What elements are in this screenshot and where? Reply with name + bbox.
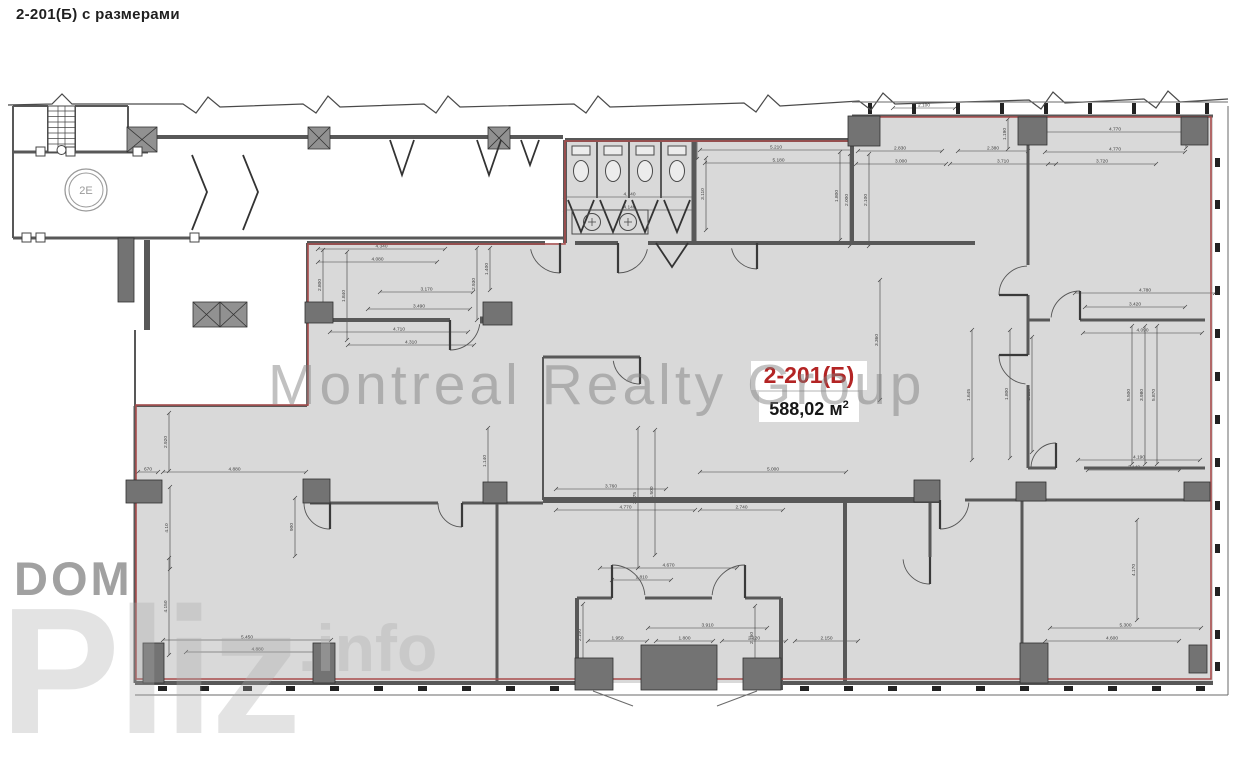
svg-text:5.870: 5.870 <box>1151 389 1157 401</box>
unit-area-value: 588,02 <box>769 399 824 419</box>
svg-text:3.170: 3.170 <box>420 286 432 292</box>
svg-text:4.770: 4.770 <box>1109 126 1121 132</box>
unit-area-exponent: 2 <box>843 399 849 411</box>
svg-text:4.090: 4.090 <box>1136 327 1148 333</box>
svg-text:1.140: 1.140 <box>482 455 488 467</box>
svg-text:2.100: 2.100 <box>863 194 869 206</box>
unit-area-label: 588,02 м2 <box>759 392 859 422</box>
svg-text:1.800: 1.800 <box>678 635 690 641</box>
svg-text:4.710: 4.710 <box>393 326 405 332</box>
page-title: 2-201(Б) с размерами <box>16 6 180 23</box>
svg-text:2.740: 2.740 <box>735 504 747 510</box>
floor-plan-drawing: 4.1404.1405.2105.1804.7704.7703.7202.830… <box>0 0 1248 768</box>
svg-text:1.950: 1.950 <box>611 635 623 641</box>
svg-text:3.000: 3.000 <box>895 158 907 164</box>
svg-text:5.210: 5.210 <box>770 144 782 150</box>
svg-text:1.190: 1.190 <box>1002 128 1008 140</box>
svg-text:4.880: 4.880 <box>228 466 240 472</box>
svg-text:3.420: 3.420 <box>1129 301 1141 307</box>
svg-text:4.880: 4.880 <box>251 646 263 652</box>
svg-text:2.150: 2.150 <box>820 635 832 641</box>
floor-plan-page: 4.1404.1405.2105.1804.7704.7703.7202.830… <box>0 0 1248 768</box>
svg-text:2.160: 2.160 <box>749 632 755 644</box>
svg-text:5.450: 5.450 <box>241 634 253 640</box>
svg-text:670: 670 <box>144 466 152 472</box>
svg-text:5.300: 5.300 <box>1119 622 1131 628</box>
svg-text:4.770: 4.770 <box>619 504 631 510</box>
svg-text:1.800: 1.800 <box>834 190 840 202</box>
svg-text:2.800: 2.800 <box>317 279 323 291</box>
svg-text:4.670: 4.670 <box>662 562 674 568</box>
svg-text:4.780: 4.780 <box>1139 287 1151 293</box>
svg-text:2.830: 2.830 <box>894 145 906 151</box>
svg-text:4.770: 4.770 <box>1109 146 1121 152</box>
svg-text:4.150: 4.150 <box>163 600 169 612</box>
svg-text:3.910: 3.910 <box>701 622 713 628</box>
svg-text:3.760: 3.760 <box>605 483 617 489</box>
svg-text:3.980: 3.980 <box>1139 389 1145 401</box>
svg-text:1.840: 1.840 <box>341 290 347 302</box>
svg-text:4.310: 4.310 <box>405 339 417 345</box>
svg-text:2.000: 2.000 <box>844 194 850 206</box>
svg-text:3.720: 3.720 <box>1096 158 1108 164</box>
svg-text:4.170: 4.170 <box>1131 564 1137 576</box>
svg-text:5.500: 5.500 <box>1126 389 1132 401</box>
svg-text:1.800: 1.800 <box>1004 388 1010 400</box>
svg-text:2.930: 2.930 <box>471 278 477 290</box>
svg-text:5.000: 5.000 <box>767 466 779 472</box>
svg-text:2.920: 2.920 <box>163 436 169 448</box>
svg-text:2E: 2E <box>79 185 92 197</box>
svg-text:5.180: 5.180 <box>772 157 784 163</box>
svg-text:3.110: 3.110 <box>700 188 706 200</box>
svg-text:4.600: 4.600 <box>1106 635 1118 641</box>
unit-code-label: 2-201(Б) <box>751 361 867 390</box>
svg-text:900: 900 <box>289 523 295 531</box>
svg-text:1.645: 1.645 <box>966 389 972 401</box>
svg-text:1.400: 1.400 <box>484 263 490 275</box>
svg-text:3.490: 3.490 <box>413 303 425 309</box>
unit-area-unit: м <box>829 399 842 419</box>
svg-text:1.500: 1.500 <box>649 486 655 498</box>
svg-text:2.380: 2.380 <box>987 145 999 151</box>
svg-text:4.190: 4.190 <box>1133 454 1145 460</box>
svg-text:3.710: 3.710 <box>997 158 1009 164</box>
svg-text:4.10: 4.10 <box>164 523 170 533</box>
svg-text:4.080: 4.080 <box>371 256 383 262</box>
svg-text:3.360: 3.360 <box>874 334 880 346</box>
